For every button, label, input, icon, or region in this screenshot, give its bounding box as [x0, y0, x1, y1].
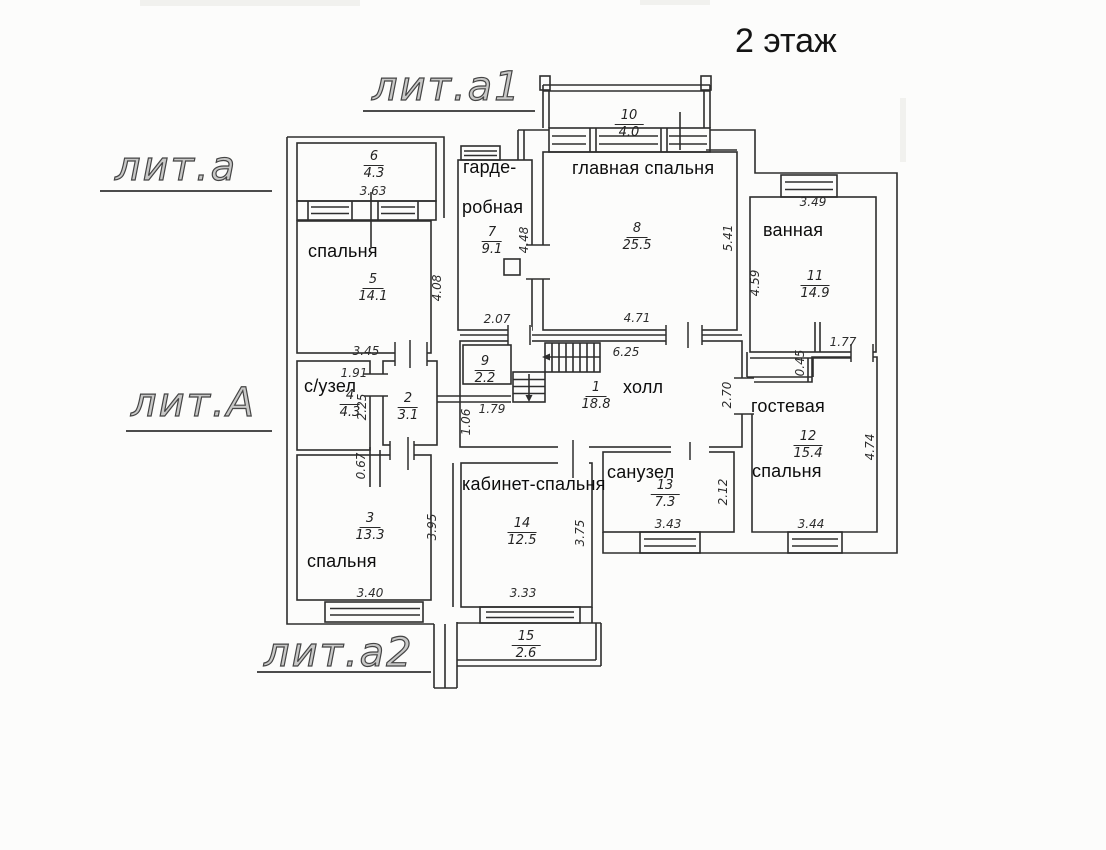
dim-344: 3.44: [798, 517, 825, 531]
dim-333: 3.33: [510, 586, 537, 600]
page-title: 2 этаж: [735, 22, 837, 61]
room-number: 1: [586, 381, 606, 397]
room-fraction-1: 1 18.8: [582, 381, 611, 411]
room-number: 7: [482, 226, 502, 242]
dim-340: 3.40: [357, 586, 384, 600]
room-label-guest-bedroom12-line2: спальня: [752, 461, 822, 482]
room-number: 15: [512, 630, 541, 646]
dim-349: 3.49: [800, 195, 827, 209]
room-fraction-8: 8 25.5: [623, 222, 652, 252]
dim-363: 3.63: [360, 184, 387, 198]
dim-345: 3.45: [353, 344, 380, 358]
room-fraction-5: 5 14.1: [359, 273, 388, 303]
room-number: 10: [615, 109, 644, 125]
room-number: 2: [398, 392, 418, 408]
building-label-lit-A: лит.А: [131, 380, 256, 426]
room-area: 15.4: [794, 446, 823, 461]
room-fraction-6: 6 4.3: [364, 150, 385, 180]
room-label-bedroom5: спальня: [308, 241, 378, 262]
dim-343: 3.43: [655, 517, 682, 531]
building-label-lit-a: лит.а: [115, 144, 237, 190]
building-label-lit-a1: лит.а1: [372, 64, 522, 110]
room-number: 5: [363, 273, 383, 289]
room-area: 18.8: [582, 397, 611, 412]
room-label-wardrobe7-line2: робная: [462, 197, 523, 218]
dim-045: 0.45: [793, 350, 807, 377]
dim-395: 3.95: [425, 514, 439, 541]
dim-408: 4.08: [430, 275, 444, 302]
building-label-lit-a2: лит.а2: [264, 630, 414, 676]
room-area: 2.6: [516, 646, 537, 661]
room-fraction-15: 15 2.6: [512, 630, 541, 660]
room-area: 4.0: [619, 125, 640, 140]
dim-207: 2.07: [484, 312, 511, 326]
room-number: 12: [794, 430, 823, 446]
dim-625: 6.25: [613, 345, 640, 359]
room-area: 13.3: [356, 528, 385, 543]
room-area: 12.5: [508, 533, 537, 548]
room-fraction-9: 9 2.2: [475, 355, 496, 385]
room-fraction-12: 12 15.4: [794, 430, 823, 460]
floor-plan-page: 2 этаж лит.а1 лит.а лит.А лит.а2 спальня…: [0, 0, 1106, 850]
room-label-bathroom11: ванная: [763, 220, 823, 241]
room-fraction-10: 10 4.0: [615, 109, 644, 139]
room-fraction-3: 3 13.3: [356, 512, 385, 542]
room-area: 25.5: [623, 238, 652, 253]
room-area: 14.1: [359, 289, 388, 304]
room-fraction-11: 11 14.9: [801, 270, 830, 300]
dim-212: 2.12: [716, 479, 730, 506]
room-fraction-13: 13 7.3: [651, 479, 680, 509]
room-number: 9: [475, 355, 495, 371]
building-label-underline: [363, 110, 535, 112]
dim-270: 2.70: [720, 382, 734, 409]
dim-067: 0.67: [354, 453, 368, 480]
dim-191: 1.91: [341, 366, 368, 380]
dim-459: 4.59: [748, 270, 762, 297]
room-area: 3.1: [398, 408, 419, 423]
room-label-main-bedroom8: главная спальня: [572, 158, 714, 179]
room-area: 9.1: [482, 242, 503, 257]
dim-177: 1.77: [830, 335, 857, 349]
room-number: 3: [360, 512, 380, 528]
room-label-office-bedroom14: кабинет-спальня: [462, 474, 606, 495]
dim-179: 1.79: [479, 402, 506, 416]
dim-541: 5.41: [721, 225, 735, 252]
room-fraction-2: 2 3.1: [398, 392, 419, 422]
room-area: 4.3: [364, 166, 385, 181]
building-label-underline: [100, 190, 272, 192]
dim-471: 4.71: [624, 311, 651, 325]
dim-375: 3.75: [573, 520, 587, 547]
room-label-hall: холл: [623, 377, 663, 398]
room-number: 13: [651, 479, 680, 495]
dim-106: 1.06: [459, 409, 473, 436]
dim-474: 4.74: [863, 434, 877, 461]
room-fraction-7: 7 9.1: [482, 226, 503, 256]
room-label-guest-bedroom12-line1: гостевая: [751, 396, 825, 417]
dim-448: 4.48: [517, 227, 531, 254]
room-number: 14: [508, 517, 537, 533]
room-area: 2.2: [475, 371, 496, 386]
building-label-underline: [126, 430, 272, 432]
room-area: 7.3: [655, 495, 676, 510]
room-number: 8: [627, 222, 647, 238]
room-label-bedroom3: спальня: [307, 551, 377, 572]
room-number: 11: [801, 270, 830, 286]
room-area: 14.9: [801, 286, 830, 301]
building-label-underline: [257, 671, 431, 673]
room-label-wardrobe7-line1: гарде-: [463, 157, 517, 178]
room-fraction-14: 14 12.5: [508, 517, 537, 547]
room-number: 6: [364, 150, 384, 166]
dim-225: 2.25: [355, 394, 369, 421]
